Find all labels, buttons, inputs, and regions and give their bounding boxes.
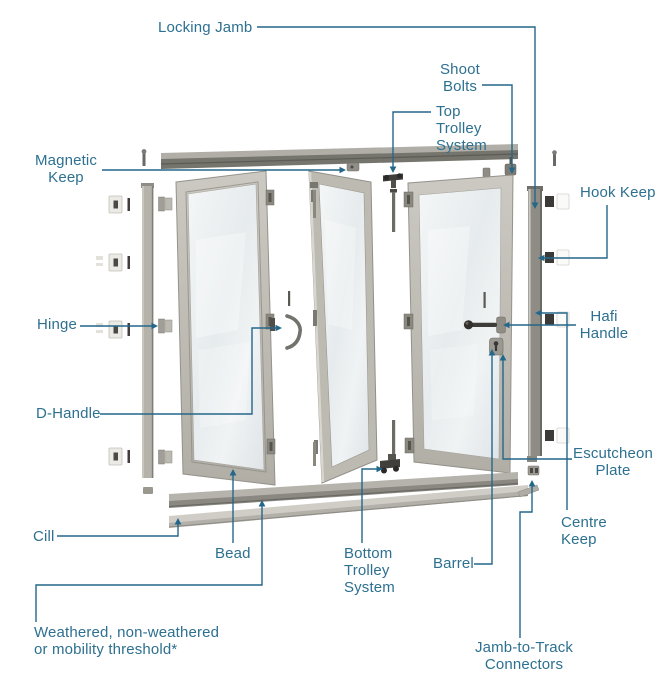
label-hook-keep: Hook Keep xyxy=(580,184,656,201)
label-centre-keep: Centre Keep xyxy=(561,514,607,548)
d-handle-part xyxy=(287,291,300,348)
label-locking-jamb: Locking Jamb xyxy=(158,19,252,36)
jamb-to-track-connector-parts xyxy=(518,466,539,497)
label-bottom-trolley-system: Bottom Trolley System xyxy=(344,545,395,596)
hook-keep-parts xyxy=(545,196,554,441)
locking-jamb-part xyxy=(527,150,569,462)
label-jamb-to-track-connectors: Jamb-to-Track Connectors xyxy=(464,639,584,673)
hinge-parts xyxy=(159,197,173,464)
bottom-trolley-parts xyxy=(380,420,400,474)
label-bead: Bead xyxy=(215,545,251,562)
label-d-handle: D-Handle xyxy=(36,405,101,422)
magnetic-keep-parts xyxy=(96,196,130,465)
diagram-stage: Locking Jamb Shoot Bolts Top Trolley Sys… xyxy=(0,0,665,700)
label-hinge: Hinge xyxy=(37,316,77,333)
label-top-trolley-system: Top Trolley System xyxy=(436,103,487,154)
door-panel-right xyxy=(404,175,513,473)
door-panel-middle xyxy=(309,171,377,483)
label-hafi-handle: Hafi Handle xyxy=(559,308,649,342)
label-shoot-bolts: Shoot Bolts xyxy=(415,61,505,95)
label-weathered-threshold: Weathered, non-weathered or mobility thr… xyxy=(34,624,219,658)
label-cill: Cill xyxy=(33,528,54,545)
label-magnetic-keep: Magnetic Keep xyxy=(21,152,111,186)
left-jamb xyxy=(141,149,154,478)
label-escutcheon-plate: Escutcheon Plate xyxy=(565,445,661,479)
magnetic-keep-target xyxy=(347,163,359,171)
bifold-door-exploded-diagram xyxy=(0,0,665,700)
shoot-bolt-parts xyxy=(483,157,516,177)
top-trolley-parts xyxy=(383,173,403,232)
label-barrel: Barrel xyxy=(433,555,474,572)
